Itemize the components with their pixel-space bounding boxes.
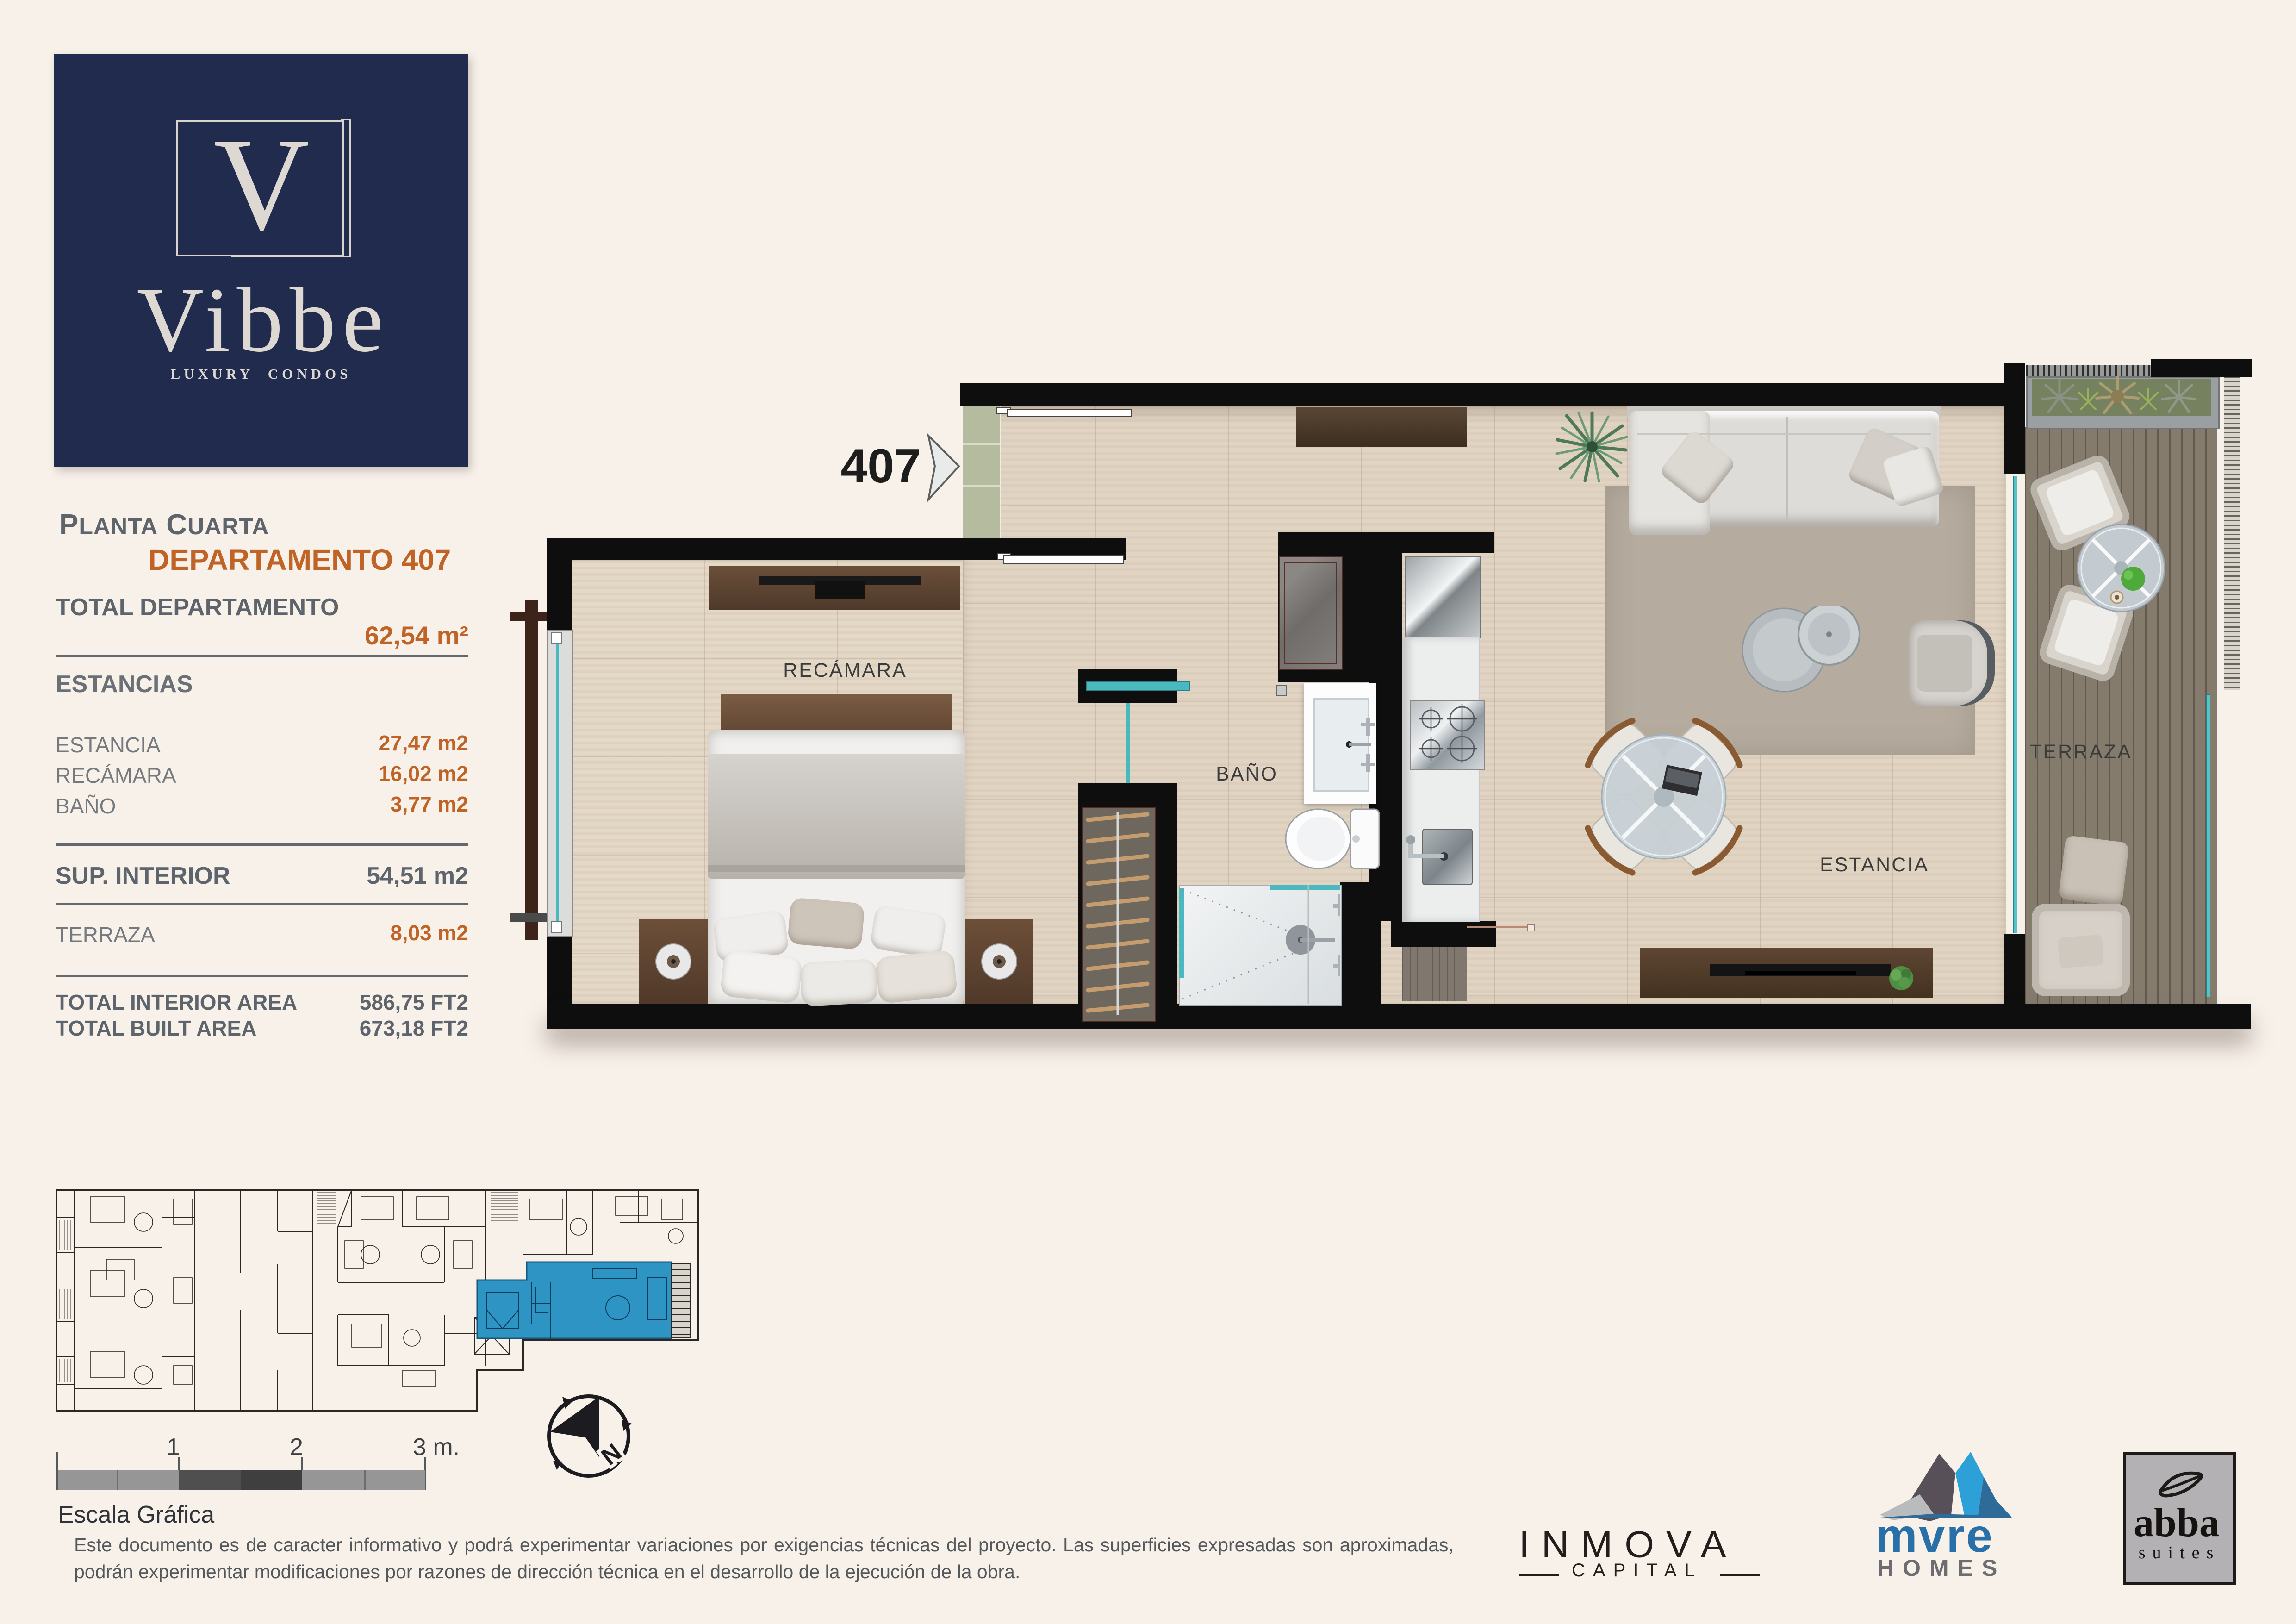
svg-text:abba: abba	[2134, 1500, 2220, 1545]
svg-text:HOMES: HOMES	[1877, 1555, 2006, 1581]
svg-text:N: N	[597, 1439, 627, 1471]
svg-text:suites: suites	[2139, 1543, 2221, 1562]
svg-text:mvre: mvre	[1875, 1509, 1994, 1562]
